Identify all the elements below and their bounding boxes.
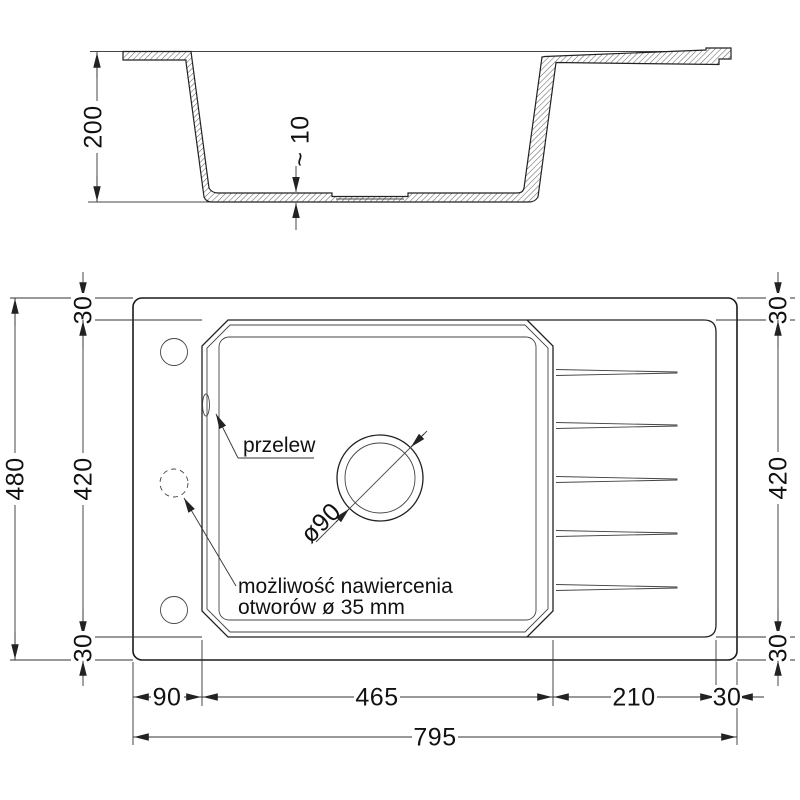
dim-inner-height-right: 420 [765, 456, 793, 499]
sink-outer-outline [133, 298, 737, 660]
faucet-hole-bottom [161, 597, 188, 624]
dim-left-rim-width: 90 [153, 684, 182, 712]
section-body [123, 48, 731, 202]
dim-total-height: 480 [2, 457, 30, 500]
dims-left: 480 30 420 30 [2, 272, 98, 686]
dim-total-width: 795 [413, 724, 456, 752]
label-drill-line1: możliwość nawiercenia [238, 575, 453, 598]
dims-right: 30 420 30 [765, 272, 793, 686]
dim-section-height: 200 [80, 105, 108, 148]
dim-section-floor-thickness: ~ 10 [287, 115, 315, 166]
extension-lines [10, 298, 795, 745]
optional-hole-dashed [160, 469, 188, 497]
section-view: 200 ~ 10 [80, 48, 732, 230]
dim-rim-bottom-right: 30 [765, 634, 793, 663]
dim-right-rim-width: 30 [713, 684, 742, 712]
label-overflow: przelew [243, 434, 316, 457]
dim-rim-top-right: 30 [765, 296, 793, 325]
technical-drawing-sink: 200 ~ 10 [0, 0, 800, 800]
dim-bowl-width: 465 [355, 684, 398, 712]
section-dim-floor: ~ 10 [287, 115, 315, 230]
dim-rim-bottom-left: 30 [70, 634, 98, 663]
faucet-hole-top [161, 339, 188, 366]
dim-drainboard-width: 210 [612, 684, 655, 712]
label-drill-line2: otworów ø 35 mm [238, 596, 405, 619]
dims-bottom: 90 465 210 30 795 [133, 684, 764, 752]
label-drain-diameter: ø90 [295, 497, 346, 548]
dim-rim-top-left: 30 [70, 296, 98, 325]
drawing-canvas: 200 ~ 10 [0, 0, 800, 800]
drainboard-grooves [556, 370, 677, 591]
overflow: przelew [203, 394, 317, 458]
dim-inner-height-left: 420 [70, 457, 98, 500]
bowl-right-edge [527, 320, 553, 637]
overflow-slot [203, 394, 210, 416]
section-dim-200: 200 [80, 52, 108, 202]
plan-view: ø90 przelew możliwość nawiercenia otworó… [2, 272, 796, 752]
